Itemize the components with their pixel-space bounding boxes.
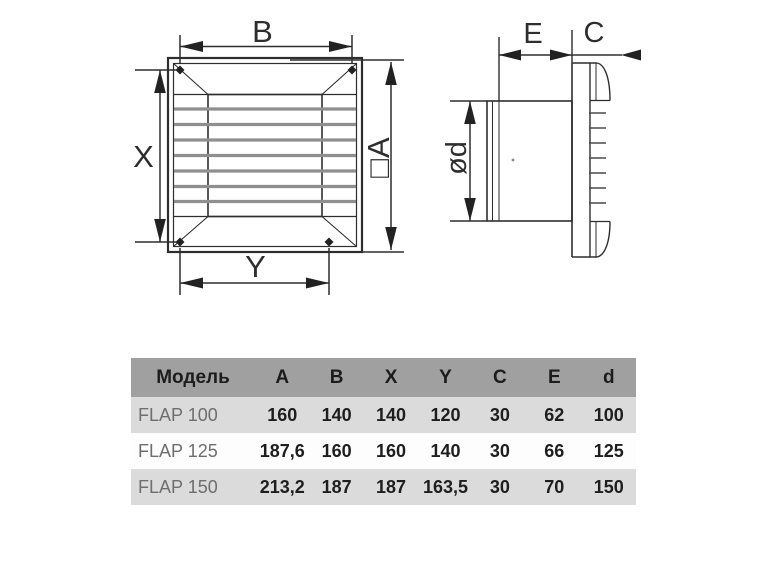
dim-label-y: Y bbox=[245, 249, 267, 284]
spec-cell: 140 bbox=[418, 433, 472, 469]
spec-cell: 30 bbox=[473, 397, 527, 433]
spec-cell: 160 bbox=[364, 433, 418, 469]
spec-cell: 160 bbox=[255, 397, 309, 433]
spec-cell: 187 bbox=[364, 469, 418, 505]
spec-cell: 30 bbox=[473, 433, 527, 469]
spec-cell: 160 bbox=[309, 433, 363, 469]
spec-cell: 70 bbox=[527, 469, 581, 505]
column-header-e: E bbox=[527, 358, 581, 397]
spec-cell: 150 bbox=[582, 469, 636, 505]
front-view: B X Y □A bbox=[133, 14, 404, 295]
spec-cell: 62 bbox=[527, 397, 581, 433]
column-header-c: C bbox=[473, 358, 527, 397]
dim-label-x: X bbox=[133, 139, 155, 174]
dim-label-a: □A bbox=[361, 136, 396, 177]
spec-cell: 187,6 bbox=[255, 433, 309, 469]
column-header-model: Модель bbox=[131, 358, 255, 397]
table-row-flap-125: FLAP 125 187,6 160 160 140 30 66 125 bbox=[131, 433, 636, 469]
spec-table: Модель A B X Y C E d FLAP 100 160 140 14… bbox=[131, 358, 636, 505]
table-row-flap-100: FLAP 100 160 140 140 120 30 62 100 bbox=[131, 397, 636, 433]
louver-edge-hatches bbox=[589, 113, 606, 203]
spec-cell: 140 bbox=[364, 397, 418, 433]
spec-cell: 163,5 bbox=[418, 469, 472, 505]
dim-label-d: ød bbox=[441, 141, 473, 175]
table-row-flap-150: FLAP 150 213,2 187 187 163,5 30 70 150 bbox=[131, 469, 636, 505]
spec-cell: 100 bbox=[582, 397, 636, 433]
table-header-row: Модель A B X Y C E d bbox=[131, 358, 636, 397]
dimension-c bbox=[572, 50, 641, 61]
model-name: FLAP 150 bbox=[131, 469, 255, 505]
louver-slats bbox=[174, 109, 356, 202]
spec-cell: 125 bbox=[582, 433, 636, 469]
model-name: FLAP 100 bbox=[131, 397, 255, 433]
spec-cell: 140 bbox=[309, 397, 363, 433]
dim-label-c: C bbox=[584, 17, 605, 49]
column-header-d: d bbox=[582, 358, 636, 397]
spec-cell: 120 bbox=[418, 397, 472, 433]
dim-label-e: E bbox=[523, 18, 542, 50]
column-header-a: A bbox=[255, 358, 309, 397]
front-cover-profile bbox=[572, 63, 610, 257]
side-view: ød E C bbox=[441, 17, 641, 257]
column-header-b: B bbox=[309, 358, 363, 397]
duct-tube bbox=[487, 101, 572, 221]
column-header-y: Y bbox=[418, 358, 472, 397]
dim-label-b: B bbox=[252, 14, 274, 49]
spec-cell: 30 bbox=[473, 469, 527, 505]
spec-cell: 213,2 bbox=[255, 469, 309, 505]
spec-cell: 66 bbox=[527, 433, 581, 469]
model-name: FLAP 125 bbox=[131, 433, 255, 469]
spec-cell: 187 bbox=[309, 469, 363, 505]
technical-drawing: B X Y □A bbox=[0, 0, 770, 345]
column-header-x: X bbox=[364, 358, 418, 397]
